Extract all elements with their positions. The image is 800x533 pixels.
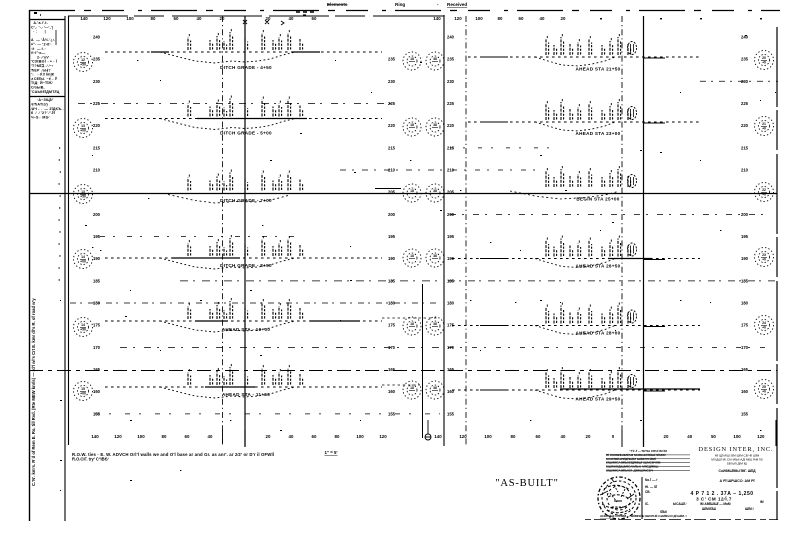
svg-text:210: 210 xyxy=(93,168,101,173)
svg-text:195: 195 xyxy=(93,234,101,239)
svg-text:180: 180 xyxy=(741,301,749,306)
svg-text:170: 170 xyxy=(93,345,101,350)
svg-text:СВ.: СВ. xyxy=(645,490,651,494)
svg-text:+0: +0 xyxy=(762,60,766,64)
svg-text:210: 210 xyxy=(388,168,396,173)
svg-text:215: 215 xyxy=(741,145,749,150)
svg-text:170: 170 xyxy=(741,345,749,350)
svg-text:60: 60 xyxy=(174,16,179,21)
svg-text:170: 170 xyxy=(447,345,455,350)
svg-text:120: 120 xyxy=(103,16,111,21)
svg-text:100: 100 xyxy=(475,16,483,21)
svg-text:165: 165 xyxy=(93,367,101,372)
svg-text:120: 120 xyxy=(379,434,387,439)
svg-text:+50: +50 xyxy=(80,62,86,66)
svg-text:'↕ ↔Ќ⇑ІяІ∫Є: '↕ ↔Ќ⇑ІяІ∫Є xyxy=(31,72,55,77)
svg-text:120: 120 xyxy=(757,434,765,439)
svg-text:240: 240 xyxy=(93,35,101,40)
svg-text:235: 235 xyxy=(447,57,455,62)
svg-text:38: 38 xyxy=(433,254,437,258)
svg-text:+0: +0 xyxy=(762,257,766,261)
svg-text:+0: +0 xyxy=(762,192,766,196)
svg-text:DESIGN INTER, INC.: DESIGN INTER, INC. xyxy=(699,446,774,453)
svg-text:СоИІМШЇМЫ ЇМГ. ШЇІД: СоИІМШЇМЫ ЇМГ. ШЇІД xyxy=(719,469,757,473)
svg-text:230: 230 xyxy=(93,79,101,84)
svg-text:100: 100 xyxy=(356,434,364,439)
svg-text:165: 165 xyxy=(447,367,455,372)
svg-text:50: 50 xyxy=(711,434,716,439)
svg-text:+00: +00 xyxy=(80,391,86,395)
svg-text:120: 120 xyxy=(454,16,462,21)
svg-text:195: 195 xyxy=(447,234,455,239)
svg-text:40: 40 xyxy=(540,16,545,21)
svg-text:230: 230 xyxy=(388,79,396,84)
svg-text:18: 18 xyxy=(410,189,414,193)
svg-text:100: 100 xyxy=(137,434,145,439)
svg-text:20: 20 xyxy=(664,434,669,439)
svg-text:140: 140 xyxy=(434,434,442,439)
svg-text:235: 235 xyxy=(93,57,101,62)
svg-text:205: 205 xyxy=(388,190,396,195)
svg-text:∕АЧ←. — 2ЇДКЪ..: ∕АЧ←. — 2ЇДКЪ.. xyxy=(30,107,64,111)
svg-text:185: 185 xyxy=(741,278,749,283)
svg-text:AHEAD STA 26+50: AHEAD STA 26+50 xyxy=(576,264,621,269)
svg-text:235: 235 xyxy=(388,57,396,62)
svg-text:А РЇ ШРШСС‹ АМ РЇ: А РЇ ШРШСС‹ АМ РЇ xyxy=(720,479,756,483)
svg-text:80: 80 xyxy=(151,16,156,21)
svg-text:DITCH GRADE - 4+50: DITCH GRADE - 4+50 xyxy=(220,65,272,70)
svg-text:20: 20 xyxy=(561,16,566,21)
svg-text:40: 40 xyxy=(197,16,202,21)
svg-text:ТІД· Й−ТЇ∕Ќ⁄: ТІД· Й−ТЇ∕Ќ⁄ xyxy=(31,80,54,85)
svg-text:80: 80 xyxy=(162,434,167,439)
svg-text:AHEAD STA - 11+50: AHEAD STA - 11+50 xyxy=(222,392,270,397)
svg-text:160: 160 xyxy=(93,389,101,394)
svg-text:155: 155 xyxy=(741,411,749,416)
svg-text:1" = 5': 1" = 5' xyxy=(324,450,337,455)
svg-text:165: 165 xyxy=(741,367,749,372)
svg-text:·A−ЗІЦЇ∕⁄: ·A−ЗІЦЇ∕⁄ xyxy=(31,98,54,102)
svg-text:240: 240 xyxy=(447,35,455,40)
svg-text:195: 195 xyxy=(741,234,749,239)
svg-text:190: 190 xyxy=(741,256,749,261)
svg-text:18: 18 xyxy=(410,123,414,127)
svg-text:155: 155 xyxy=(447,411,455,416)
svg-text:'САЫІЕЇДМТ⁄ЇЦ: 'САЫІЕЇДМТ⁄ЇЦ xyxy=(31,90,60,94)
svg-text:40: 40 xyxy=(289,434,294,439)
svg-text:No.Ї — ∕∕: No.Ї — ∕∕ xyxy=(645,478,659,482)
svg-text:180: 180 xyxy=(388,301,396,306)
svg-text:215: 215 xyxy=(388,145,396,150)
svg-text:60: 60 xyxy=(312,16,317,21)
svg-text:R.O.СІГ. try' C°ІВЄ∕: R.O.СІГ. try' C°ІВЄ∕ xyxy=(72,457,110,462)
svg-text:+50: +50 xyxy=(80,327,86,331)
svg-text:180: 180 xyxy=(447,301,455,306)
svg-text:⁄ёЋАТІЈ⁄): ⁄ёЋАТІЈ⁄) xyxy=(30,102,49,106)
svg-text:Ч−Ѕ←МЅ∕: Ч−Ѕ←МЅ∕ xyxy=(31,116,50,120)
svg-text:165: 165 xyxy=(388,367,396,372)
svg-text:155: 155 xyxy=(388,411,396,416)
svg-text:AHEAD STA 29+50: AHEAD STA 29+50 xyxy=(576,397,621,402)
svg-text:180: 180 xyxy=(93,301,101,306)
svg-text:60: 60 xyxy=(185,434,190,439)
svg-text:ЫСАШЇ ∕: ЫСАШЇ ∕ xyxy=(673,502,688,506)
svg-text:DITCH GRADE - 5+00: DITCH GRADE - 5+00 xyxy=(220,131,272,136)
svg-text:A — 'Å½.'¿›.: A — 'Å½.'¿›. xyxy=(31,37,55,42)
svg-text:38: 38 xyxy=(433,123,437,127)
svg-text:100: 100 xyxy=(484,434,492,439)
svg-text:185: 185 xyxy=(447,278,455,283)
svg-text:C.'N'. km's. R´d of Rem E. Ro.: C.'N'. km's. R´d of Rem E. Ro. till Rvd.… xyxy=(31,298,36,486)
svg-text:AHEAD STA - 10+00: AHEAD STA - 10+00 xyxy=(222,327,271,332)
svg-text:80: 80 xyxy=(511,434,516,439)
svg-text:205: 205 xyxy=(447,190,455,195)
svg-text:210: 210 xyxy=(447,168,455,173)
svg-text:38: 38 xyxy=(433,189,437,193)
svg-text:195: 195 xyxy=(388,234,396,239)
svg-text:190: 190 xyxy=(93,256,101,261)
svg-text:Received: Received xyxy=(447,2,467,7)
svg-text:225: 225 xyxy=(388,101,396,106)
svg-text:18: 18 xyxy=(410,254,414,258)
svg-text:АНЫЅЇШІ СВЧЇІМ — ШЇМІЅЇШ ІШСВЧ: АНЫЅЇШІ СВЧЇІМ — ШЇМІЅЇШ ІШСВЧЇІ СаМЇІЫ … xyxy=(600,514,687,518)
svg-text:AHEAD STA 28+00: AHEAD STA 28+00 xyxy=(576,331,621,336)
svg-text:140: 140 xyxy=(91,434,99,439)
svg-text:225: 225 xyxy=(447,101,455,106)
svg-text:200: 200 xyxy=(93,212,101,217)
svg-text:220: 220 xyxy=(447,123,455,128)
svg-text:DITCH GRADE - 8+50: DITCH GRADE - 8+50 xyxy=(220,263,272,268)
svg-text:220: 220 xyxy=(93,123,101,128)
svg-text:40: 40 xyxy=(289,16,294,21)
svg-text:18: 18 xyxy=(410,386,414,390)
svg-text:225: 225 xyxy=(741,101,749,106)
svg-text:BEGIN STA 25+00: BEGIN STA 25+00 xyxy=(576,197,619,202)
svg-text:ШЇМІЅЇШ: ШЇМІЅЇШ xyxy=(702,507,716,511)
svg-text:200: 200 xyxy=(447,212,455,217)
svg-text:60: 60 xyxy=(536,434,541,439)
svg-text:AHEAD STA 23+00: AHEAD STA 23+00 xyxy=(576,131,621,136)
svg-text:160: 160 xyxy=(741,389,749,394)
svg-text:210: 210 xyxy=(741,168,749,173)
svg-text:+0: +0 xyxy=(762,325,766,329)
svg-text:230: 230 xyxy=(447,79,455,84)
svg-text:185: 185 xyxy=(388,278,396,283)
svg-text:Elements: Elements xyxy=(327,2,348,7)
svg-text:ЋЕР ∕оІ∮?: ЋЕР ∕оІ∮? xyxy=(31,67,51,72)
svg-text:+00: +00 xyxy=(80,259,86,263)
svg-text:20: 20 xyxy=(586,434,591,439)
svg-text:190: 190 xyxy=(388,256,396,261)
svg-text:140: 140 xyxy=(433,16,441,21)
svg-text:ІМ: ІМ xyxy=(760,500,764,504)
svg-text:225: 225 xyxy=(93,101,101,106)
svg-text:200: 200 xyxy=(388,212,396,217)
svg-text:НІ. — ЅЇ: НІ. — ЅЇ xyxy=(645,485,657,489)
svg-text:40: 40 xyxy=(208,434,213,439)
svg-text:20: 20 xyxy=(266,434,271,439)
svg-text:DITCH GRADE - 7+00: DITCH GRADE - 7+00 xyxy=(220,198,272,203)
svg-text:ШЇМ І: ШЇМ І xyxy=(745,507,754,511)
svg-text:20: 20 xyxy=(220,16,225,21)
svg-text:100: 100 xyxy=(126,16,134,21)
svg-text:175: 175 xyxy=(388,323,396,328)
svg-text:ЅВІ ЫЇІ ДЇМ ІШ: ЅВІ ЫЇІ ДЇМ ІШ xyxy=(727,462,748,466)
svg-text:240: 240 xyxy=(741,35,749,40)
svg-text:215: 215 xyxy=(447,145,455,150)
svg-text:"AS-BUILT": "AS-BUILT" xyxy=(495,478,558,489)
svg-text:175: 175 xyxy=(93,323,101,328)
svg-text:120: 120 xyxy=(114,434,122,439)
svg-text:220: 220 xyxy=(388,123,396,128)
svg-text:175: 175 xyxy=(741,323,749,328)
svg-text:185: 185 xyxy=(93,278,101,283)
svg-text:100: 100 xyxy=(733,434,741,439)
svg-text:120: 120 xyxy=(459,434,467,439)
svg-text:38: 38 xyxy=(433,322,437,326)
svg-text:Ring: Ring xyxy=(395,2,405,7)
svg-text:170: 170 xyxy=(388,345,396,350)
svg-text:ІМ АМЇШІШЇ — МаМ: ІМ АМЇШІШЇ — МаМ xyxy=(700,502,731,506)
svg-text:ІС.: ІС. xyxy=(645,502,649,506)
svg-text:Ќ ∕ ∕ '2?' ∕'.Ї⁄Ї: Ќ ∕ ∕ '2?' ∕'.Ї⁄Ї xyxy=(31,110,56,115)
svg-text:235: 235 xyxy=(741,57,749,62)
svg-text:18: 18 xyxy=(410,57,414,61)
svg-text:18: 18 xyxy=(410,322,414,326)
svg-text:AHEAD STA 21+50: AHEAD STA 21+50 xyxy=(576,67,621,72)
svg-text:140: 140 xyxy=(80,16,88,21)
svg-text:3 С' СМ 12∕Ї.7: 3 С' СМ 12∕Ї.7 xyxy=(696,496,732,502)
svg-text:155: 155 xyxy=(93,411,101,416)
svg-text:40: 40 xyxy=(687,434,692,439)
svg-text:+0: +0 xyxy=(762,389,766,393)
svg-text:+00: +00 xyxy=(80,128,86,132)
svg-text:+0: +0 xyxy=(762,126,766,130)
svg-text:38: 38 xyxy=(433,57,437,61)
svg-text:60: 60 xyxy=(312,434,317,439)
svg-text:215: 215 xyxy=(93,145,101,150)
svg-text:80: 80 xyxy=(335,434,340,439)
svg-text:· : |: · : | xyxy=(31,30,46,34)
svg-text:230: 230 xyxy=(741,79,749,84)
svg-text:40: 40 xyxy=(561,434,566,439)
svg-text:38: 38 xyxy=(433,386,437,390)
svg-text:60: 60 xyxy=(519,16,524,21)
svg-text:80: 80 xyxy=(498,16,503,21)
svg-text:220: 220 xyxy=(741,123,749,128)
svg-text:200: 200 xyxy=(741,212,749,217)
svg-text:+50: +50 xyxy=(80,194,86,198)
svg-text:160: 160 xyxy=(388,389,396,394)
